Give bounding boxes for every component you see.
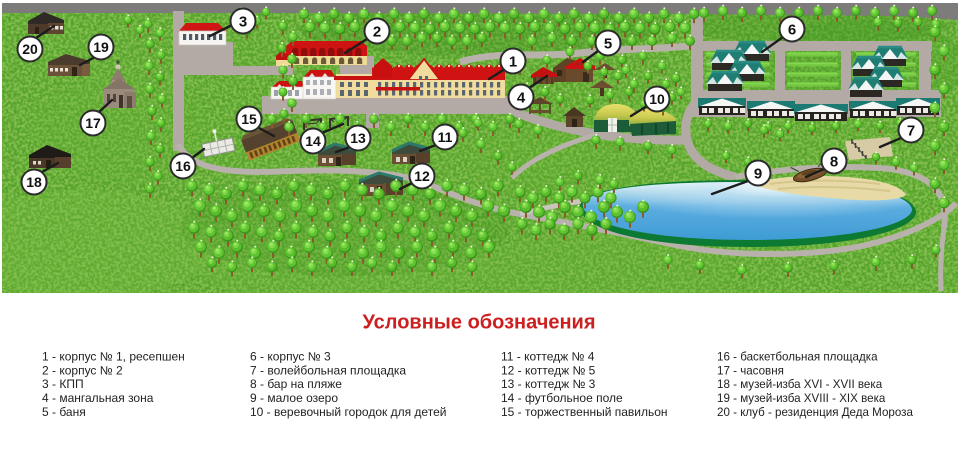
svg-text:1: 1 — [509, 53, 517, 70]
svg-text:7: 7 — [907, 122, 915, 139]
svg-text:10: 10 — [649, 91, 665, 107]
svg-text:8 - бар на пляже: 8 - бар на пляже — [250, 377, 342, 391]
svg-text:16 - баскетбольная площадка: 16 - баскетбольная площадка — [717, 351, 878, 364]
svg-text:15: 15 — [241, 111, 257, 127]
svg-text:4 - мангальная зона: 4 - мангальная зона — [42, 391, 154, 405]
svg-text:15 - торжественный павильон: 15 - торжественный павильон — [501, 405, 668, 419]
svg-text:2: 2 — [373, 23, 381, 40]
svg-text:8: 8 — [830, 153, 838, 170]
svg-text:5: 5 — [604, 35, 612, 52]
svg-text:Условные обозначения: Условные обозначения — [362, 312, 595, 334]
svg-text:17: 17 — [85, 115, 101, 131]
svg-text:2 - корпус № 2: 2 - корпус № 2 — [42, 363, 123, 377]
svg-text:7 - волейбольная площадка: 7 - волейбольная площадка — [250, 363, 406, 377]
svg-text:11 - коттедж № 4: 11 - коттедж № 4 — [501, 350, 595, 364]
svg-text:3 - КПП: 3 - КПП — [42, 377, 84, 391]
svg-text:6: 6 — [788, 21, 796, 38]
svg-text:14 - футбольное поле: 14 - футбольное поле — [501, 391, 623, 405]
svg-text:1 - корпус № 1, ресепшен: 1 - корпус № 1, ресепшен — [42, 350, 185, 364]
svg-text:3: 3 — [239, 13, 247, 30]
svg-text:13: 13 — [350, 130, 366, 146]
svg-text:5 - баня: 5 - баня — [42, 405, 86, 419]
svg-text:10 - веревочный городок для де: 10 - веревочный городок для детей — [250, 405, 446, 419]
svg-text:20: 20 — [22, 41, 38, 57]
svg-text:4: 4 — [517, 89, 526, 106]
svg-text:19 - музей-изба XVIII - XIX ве: 19 - музей-изба XVIII - XIX века — [717, 392, 886, 405]
svg-text:17 - часовня: 17 - часовня — [717, 364, 784, 377]
svg-text:9 - малое озеро: 9 - малое озеро — [250, 391, 338, 405]
svg-text:11: 11 — [438, 129, 453, 145]
svg-text:18 - музей-изба XVI - XVII век: 18 - музей-изба XVI - XVII века — [717, 378, 883, 391]
svg-text:12 - коттедж № 5: 12 - коттедж № 5 — [501, 363, 596, 377]
svg-text:20 - клуб - резиденция Деда Мо: 20 - клуб - резиденция Деда Мороза — [717, 406, 913, 419]
svg-text:6 - корпус № 3: 6 - корпус № 3 — [250, 350, 331, 364]
svg-text:18: 18 — [26, 174, 42, 190]
svg-text:9: 9 — [754, 165, 762, 182]
svg-text:19: 19 — [93, 39, 109, 55]
svg-text:14: 14 — [305, 133, 321, 149]
svg-text:12: 12 — [414, 168, 430, 184]
svg-text:16: 16 — [175, 158, 191, 174]
svg-text:13 - коттедж № 3: 13 - коттедж № 3 — [501, 377, 596, 391]
